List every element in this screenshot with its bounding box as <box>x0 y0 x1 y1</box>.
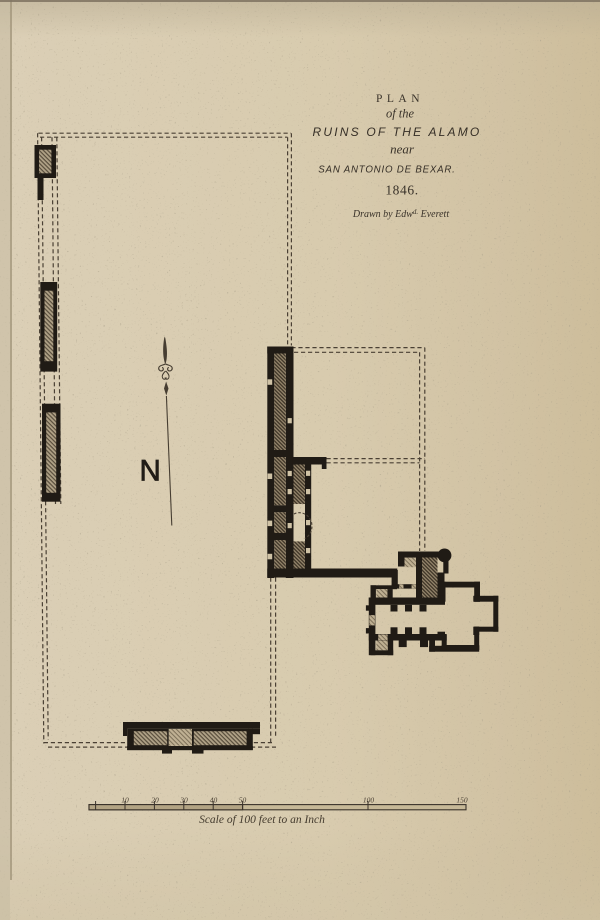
svg-text:50: 50 <box>239 796 247 805</box>
svg-text:30: 30 <box>179 796 188 805</box>
svg-text:100: 100 <box>363 796 375 805</box>
svg-text:Drawn by Edwd. Everett: Drawn by Edwd. Everett <box>352 208 449 220</box>
svg-text:Scale of 100 feet to an Inch: Scale of 100 feet to an Inch <box>199 814 325 826</box>
svg-text:N: N <box>140 455 161 488</box>
svg-text:PLAN: PLAN <box>376 93 424 105</box>
svg-text:of the: of the <box>386 107 415 121</box>
svg-text:150: 150 <box>456 796 468 805</box>
svg-text:40: 40 <box>210 796 218 805</box>
svg-text:1846.: 1846. <box>385 183 418 198</box>
svg-text:10: 10 <box>121 796 129 805</box>
svg-text:near: near <box>390 142 415 157</box>
svg-text:SAN ANTONIO DE BEXAR.: SAN ANTONIO DE BEXAR. <box>318 165 455 176</box>
svg-text:20: 20 <box>151 796 159 805</box>
svg-text:RUINS OF THE ALAMO: RUINS OF THE ALAMO <box>313 125 482 139</box>
